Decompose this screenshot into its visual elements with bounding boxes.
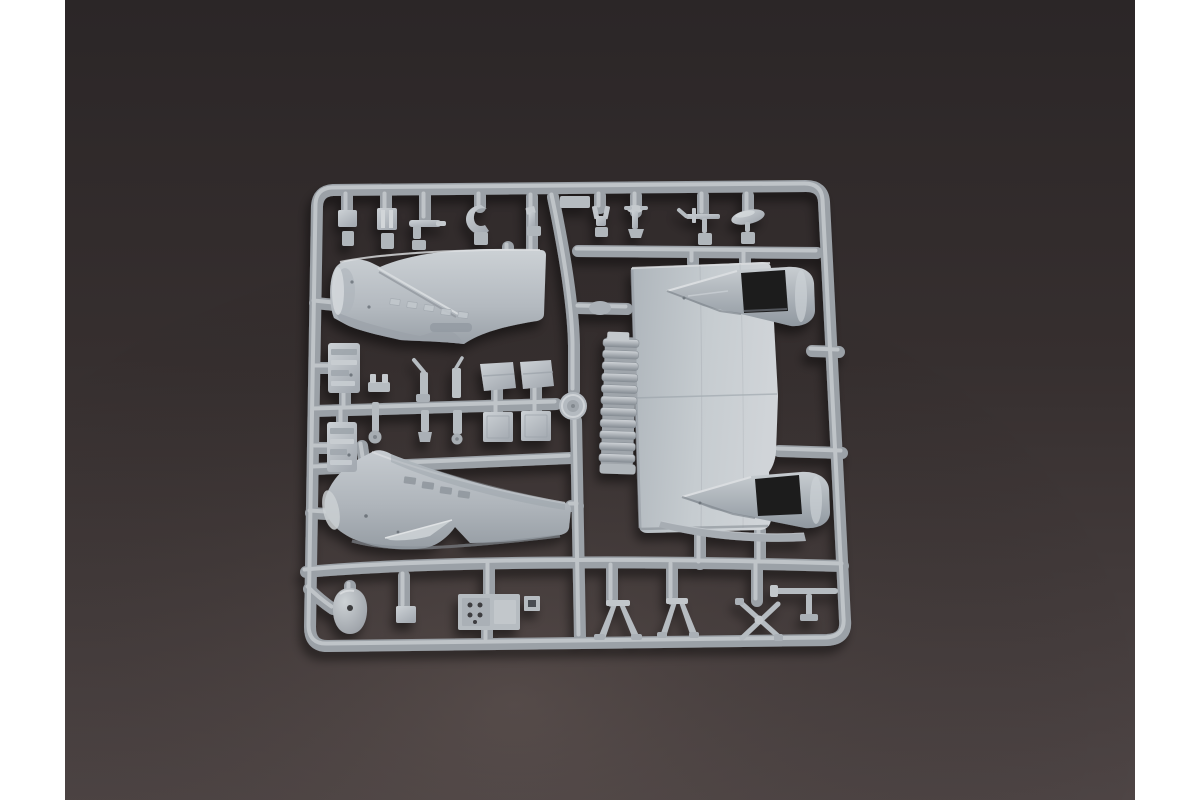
- number-tab: [560, 196, 590, 208]
- recessed-slot: [430, 323, 472, 332]
- hatch-disc: circular hatch disc: [559, 392, 587, 420]
- photo-stage: Light grey injection-molded plastic spru…: [0, 0, 1200, 800]
- small-block-part: [396, 606, 416, 623]
- cockpit-opening-forward: [741, 270, 788, 313]
- sprue-photo: sprue frame and runner grid: [0, 0, 1200, 800]
- photo-background: [0, 0, 1200, 800]
- dome-spinner-part: dome / spinner part: [333, 588, 367, 634]
- sprue-gate-bulge: [589, 301, 611, 315]
- cockpit-opening-rear: [755, 475, 802, 516]
- sidewall-panel-b: cockpit sidewall panel B: [327, 422, 357, 472]
- backdrop-glow: [65, 0, 1135, 800]
- sidewall-panel-a: cockpit sidewall panel A: [328, 343, 360, 393]
